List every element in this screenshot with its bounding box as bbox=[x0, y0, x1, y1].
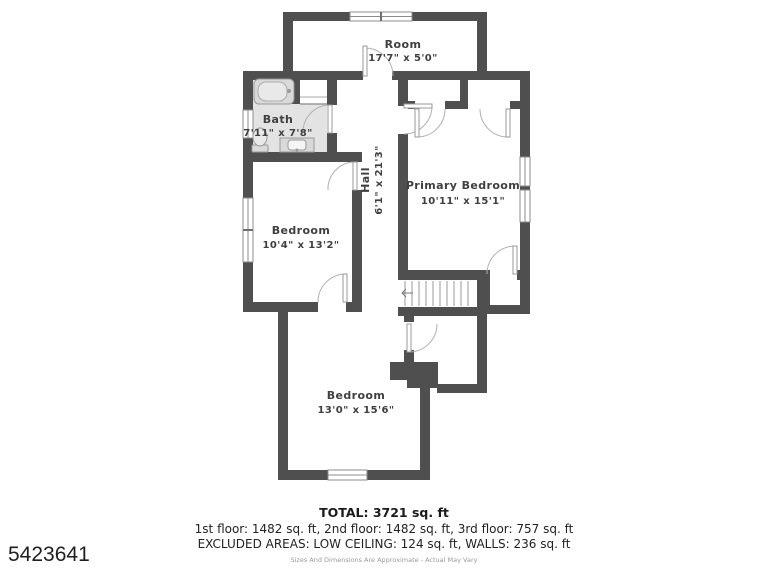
disclaimer-text: Sizes And Dimensions Are Approximate - A… bbox=[0, 556, 768, 564]
bath-name: Bath bbox=[263, 113, 294, 126]
window-primary-1 bbox=[520, 157, 530, 186]
window-bedroom-bottom bbox=[328, 470, 367, 480]
bedroom-left-dims: 10'4" x 13'2" bbox=[263, 240, 340, 251]
floor-plan-page: Room 17'7" x 5'0" Bath 7'11" x 7'8" Hall… bbox=[0, 0, 768, 576]
window-bedroom-left bbox=[243, 198, 253, 262]
tub-faucet bbox=[287, 89, 291, 93]
top-room-dims: 17'7" x 5'0" bbox=[368, 53, 438, 64]
top-room-name: Room bbox=[385, 38, 422, 51]
door-bedroom-left-closet bbox=[318, 274, 347, 302]
hall-name: Hall bbox=[359, 167, 372, 193]
bedroom-bottom-name: Bedroom bbox=[327, 389, 386, 402]
stair-direction-arrow bbox=[402, 289, 413, 297]
sink-faucet bbox=[296, 149, 299, 152]
hall-dims: 6'1" x 21'3" bbox=[374, 145, 385, 215]
door-primary-rear bbox=[487, 246, 517, 274]
bedroom-bottom-dims: 13'0" x 15'6" bbox=[318, 405, 395, 416]
excluded-areas: EXCLUDED AREAS: LOW CEILING: 124 sq. ft,… bbox=[0, 537, 768, 551]
bath-closet bbox=[300, 80, 327, 104]
door-primary-closet-1 bbox=[415, 109, 445, 137]
hall-label: Hall 6'1" x 21'3" bbox=[359, 145, 385, 215]
door-bedroom-left-entry bbox=[328, 162, 357, 190]
door-primary-closet-2 bbox=[480, 109, 510, 137]
bath-dims: 7'11" x 7'8" bbox=[243, 128, 313, 139]
primary-bedroom-dims: 10'11" x 15'1" bbox=[421, 196, 505, 207]
primary-bedroom-name: Primary Bedroom bbox=[406, 179, 520, 192]
window-top-room bbox=[350, 12, 412, 21]
sink-vanity bbox=[280, 138, 314, 152]
listing-number: 5423641 bbox=[8, 543, 90, 567]
total-area: TOTAL: 3721 sq. ft bbox=[0, 505, 768, 520]
floor-areas: 1st floor: 1482 sq. ft, 2nd floor: 1482 … bbox=[0, 522, 768, 536]
staircase bbox=[402, 281, 468, 306]
area-summary: TOTAL: 3721 sq. ft 1st floor: 1482 sq. f… bbox=[0, 505, 768, 564]
floorplan-drawing: Room 17'7" x 5'0" Bath 7'11" x 7'8" Hall… bbox=[0, 0, 768, 576]
bathtub bbox=[254, 79, 294, 104]
window-primary-2 bbox=[520, 190, 530, 222]
bedroom-left-name: Bedroom bbox=[272, 224, 331, 237]
door-small-room bbox=[407, 324, 437, 352]
chimney bbox=[390, 362, 438, 388]
